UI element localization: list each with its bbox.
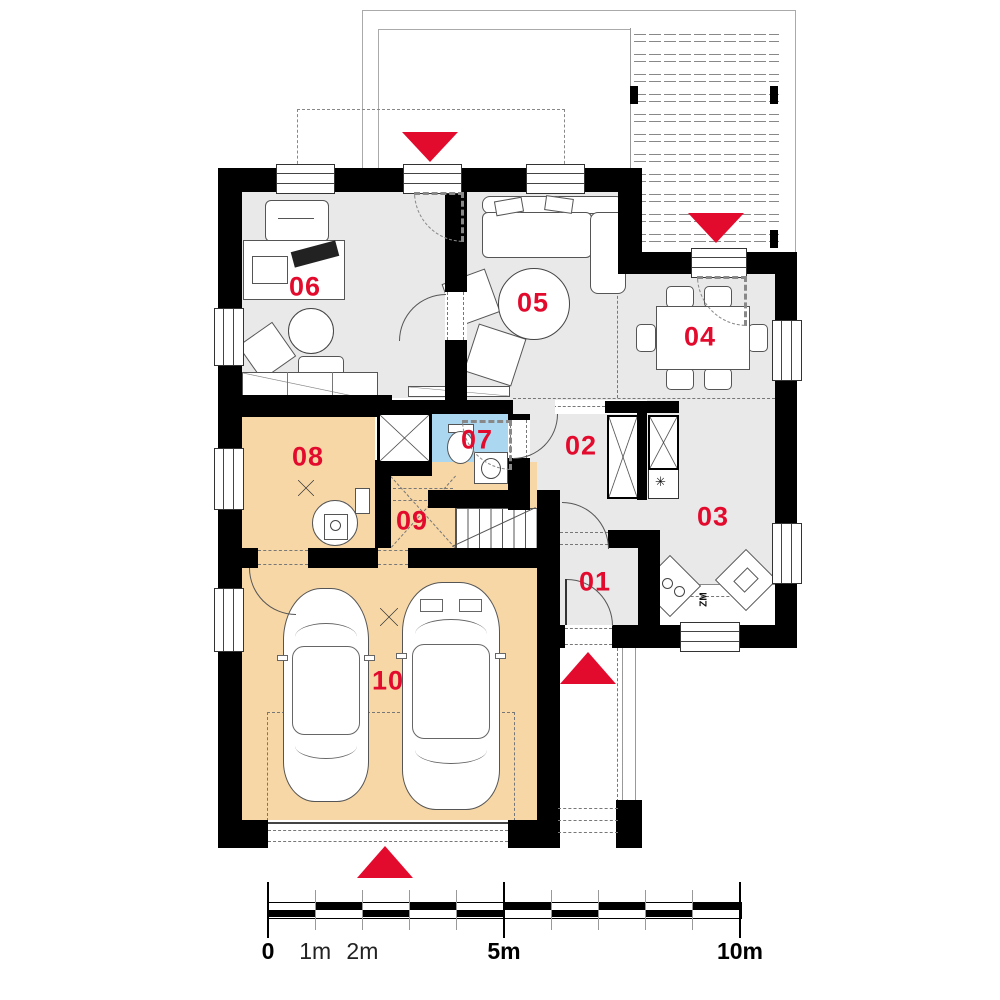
room-label-01: 01 (579, 567, 611, 598)
open-plan-boundary (617, 276, 618, 398)
terrace-post (770, 86, 778, 104)
scale-tick (315, 890, 316, 930)
scale-bar: 01m2m5m10m (268, 880, 740, 975)
scale-segment (551, 903, 598, 910)
scale-segment (504, 910, 551, 917)
opening-dash (565, 644, 612, 645)
opening-dash (463, 292, 464, 340)
dining-chair (748, 324, 768, 352)
porch-step (558, 808, 618, 809)
car (402, 582, 500, 810)
car-rear-window (415, 736, 486, 764)
window (214, 308, 244, 366)
boiler-dial (330, 520, 341, 531)
driveway-dash (268, 830, 508, 831)
scale-segment (362, 910, 409, 917)
dining-chair (704, 368, 732, 390)
scale-segment (410, 903, 457, 910)
scale-segment (268, 903, 315, 910)
room-label-06: 06 (289, 272, 321, 303)
room-label-10: 10 (372, 666, 404, 697)
scale-tick (645, 890, 646, 930)
car-rear-window (295, 732, 357, 758)
scale-tick (598, 890, 599, 930)
driveway-dash (268, 841, 508, 842)
window (680, 622, 740, 652)
room-label-02: 02 (565, 431, 597, 462)
terrace-post (770, 230, 778, 248)
room-label-04: 04 (684, 322, 716, 353)
room-label-07: 07 (461, 425, 493, 456)
terrace-door (691, 248, 747, 278)
burner (674, 586, 685, 597)
wall (608, 530, 660, 548)
scale-tick (267, 882, 269, 938)
wall (242, 548, 258, 568)
dining-chair (666, 286, 694, 308)
red-triangle-icon (688, 213, 744, 243)
car-mirror (277, 655, 288, 661)
scale-segment (693, 903, 740, 910)
scale-segment (410, 910, 457, 917)
wall (408, 548, 537, 568)
x-lamp-icon (298, 480, 314, 496)
scale-segment (693, 910, 740, 917)
room-label-08: 08 (292, 442, 324, 473)
dishwasher-label: ZM (699, 592, 710, 606)
room-label-09: 09 (396, 506, 428, 537)
wall (220, 395, 392, 417)
scale-tick (503, 882, 505, 938)
scale-tick (551, 890, 552, 930)
printer-line (278, 218, 314, 219)
x-lamp-icon (380, 608, 398, 626)
scale-segment (598, 903, 645, 910)
printer (265, 200, 329, 242)
wall (537, 530, 560, 548)
door-leaf (565, 579, 567, 625)
scale-segment (646, 903, 693, 910)
window (772, 523, 802, 584)
window (214, 588, 244, 652)
red-triangle-icon (402, 132, 458, 162)
opening-dash (258, 550, 308, 551)
passage-opening (378, 548, 408, 568)
scale-tick (362, 890, 363, 930)
car-mirror (364, 655, 375, 661)
wall (638, 548, 660, 625)
garage-door-line (268, 822, 508, 824)
red-triangle-icon (560, 652, 616, 684)
wall (775, 252, 797, 648)
window (276, 164, 335, 194)
door-opening (258, 548, 308, 568)
scale-tick (456, 890, 457, 930)
hood-vent (420, 599, 443, 612)
x-cross-wardrobe-icon (607, 415, 639, 499)
porch-step (558, 832, 618, 833)
wall-unit (355, 488, 370, 514)
scale-segment (598, 910, 645, 917)
x-cross-wardrobe-icon (648, 415, 679, 470)
scale-segment (646, 910, 693, 917)
freezer-symbol: ✳ (655, 474, 666, 490)
x-cross-shaft-icon (377, 412, 432, 464)
opening-dash (378, 564, 408, 565)
red-triangle-icon (357, 846, 413, 878)
scale-label: 10m (717, 938, 763, 965)
porch-edge-dashed (617, 648, 618, 802)
window (214, 448, 244, 510)
wall (605, 401, 679, 413)
dining-chair (636, 324, 656, 352)
scale-label: 0 (262, 938, 275, 965)
scale-label: 1m (299, 938, 331, 965)
car-mirror (396, 653, 407, 659)
wall (428, 490, 510, 508)
scale-segment (315, 910, 362, 917)
dining-chair (666, 368, 694, 390)
floor-plan-canvas: ZM ✳ (0, 0, 1000, 1000)
scale-tick (409, 890, 410, 930)
car-mirror (495, 653, 506, 659)
stair-treads (455, 508, 539, 550)
opening-dash (447, 292, 448, 340)
scale-label: 2m (346, 938, 378, 965)
car-cabin (412, 644, 491, 739)
scale-segment (551, 910, 598, 917)
wall (308, 548, 378, 568)
round-table (288, 308, 334, 354)
porch-pillar (616, 800, 642, 848)
car (283, 588, 369, 802)
car-cabin (292, 646, 361, 735)
window (526, 164, 585, 194)
opening-dash (378, 550, 408, 551)
opening-dash (258, 564, 308, 565)
garage-door-opening (268, 820, 508, 848)
scale-tick (692, 890, 693, 930)
open-plan-boundary (553, 406, 605, 407)
scale-segment (362, 903, 409, 910)
opening-dash (565, 628, 612, 629)
open-plan-boundary (513, 398, 775, 399)
terrace-window-door (403, 164, 462, 194)
room-label-03: 03 (697, 502, 729, 533)
porch-step (558, 820, 618, 821)
window (772, 320, 802, 381)
scale-tick (739, 882, 741, 938)
scale-segment (268, 910, 315, 917)
hood-vent (459, 599, 482, 612)
sofa-seat (482, 212, 592, 258)
terrace-post (630, 86, 638, 104)
porch-railing (622, 648, 636, 800)
scale-segment (504, 903, 551, 910)
scale-label: 5m (487, 938, 520, 965)
burner (662, 578, 673, 589)
scale-segment (457, 903, 504, 910)
scale-segment (457, 910, 504, 917)
room-label-05: 05 (517, 288, 549, 319)
desk-pad (252, 256, 288, 284)
door-opening (513, 400, 555, 414)
scale-segment (315, 903, 362, 910)
